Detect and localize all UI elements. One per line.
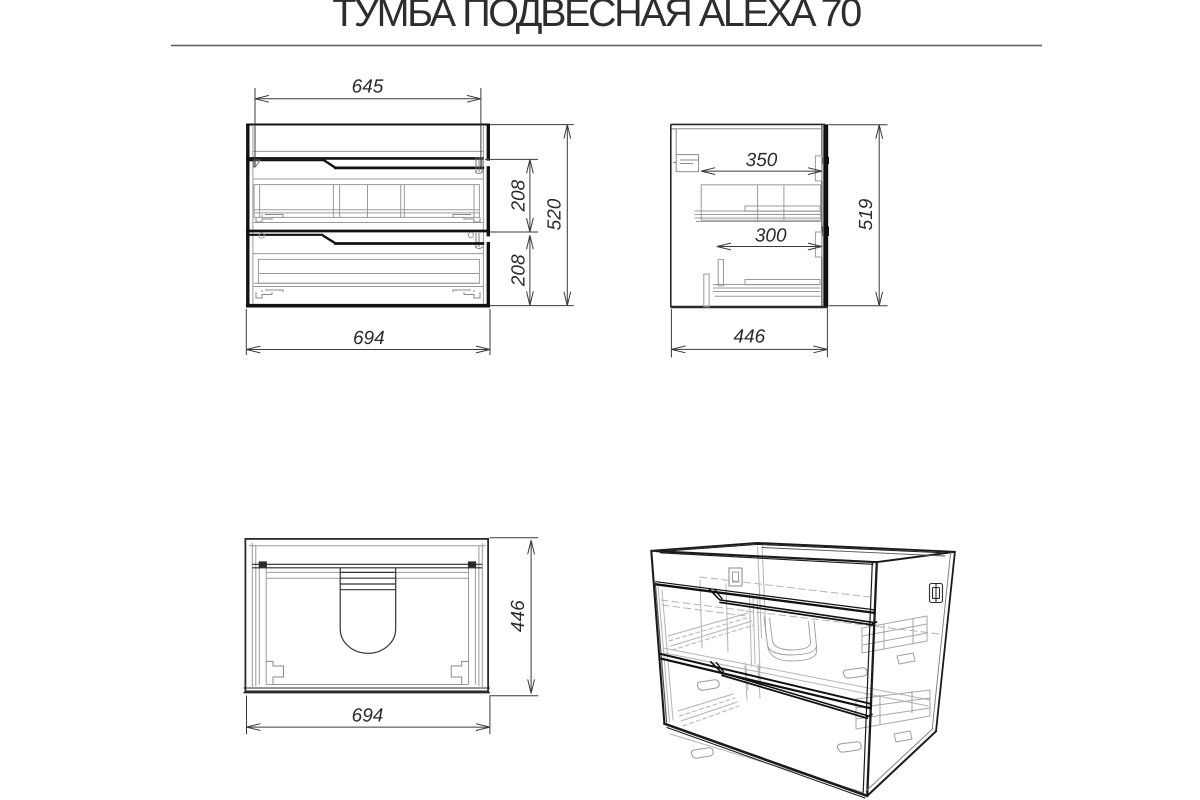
- svg-text:519: 519: [856, 198, 877, 230]
- svg-text:446: 446: [508, 600, 529, 632]
- svg-text:ТУМБА ПОДВЕСНАЯ ALEXA 70: ТУМБА ПОДВЕСНАЯ ALEXA 70: [332, 0, 861, 35]
- svg-text:520: 520: [545, 198, 566, 230]
- svg-text:208: 208: [509, 254, 530, 287]
- svg-text:645: 645: [352, 77, 384, 98]
- svg-text:300: 300: [755, 225, 787, 246]
- svg-text:694: 694: [352, 706, 384, 727]
- svg-text:694: 694: [353, 328, 385, 349]
- svg-text:350: 350: [746, 150, 778, 171]
- svg-text:208: 208: [509, 179, 530, 212]
- svg-text:446: 446: [734, 327, 766, 348]
